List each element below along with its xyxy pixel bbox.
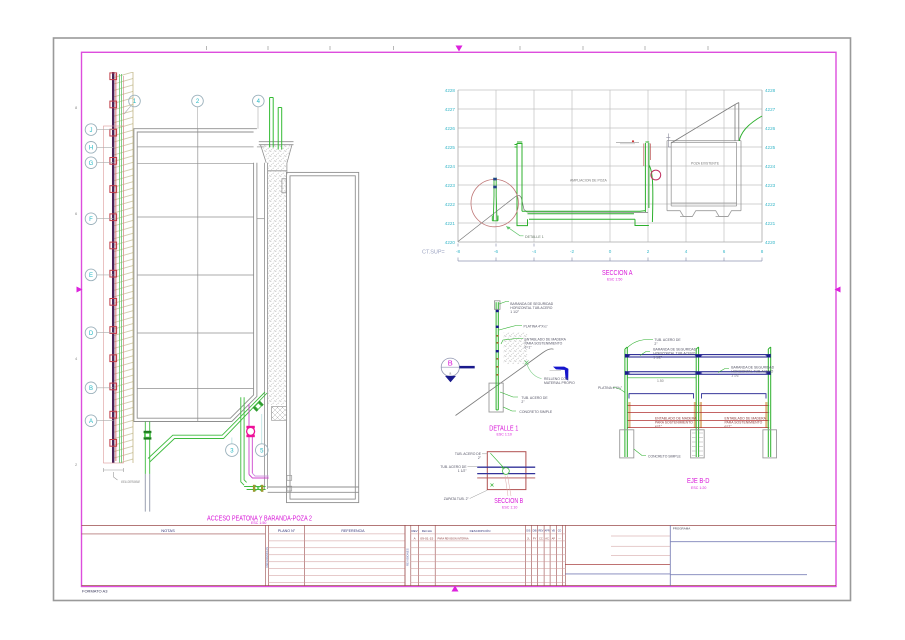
svg-text:J: J xyxy=(90,128,93,134)
svg-text:DESCRIPCIÓN: DESCRIPCIÓN xyxy=(470,528,491,533)
svg-text:CONCRETO SIMPLE: CONCRETO SIMPLE xyxy=(519,410,552,414)
svg-text:DETALLE 1: DETALLE 1 xyxy=(525,235,544,239)
svg-text:AC: AC xyxy=(545,537,549,541)
svg-text:—: — xyxy=(558,538,561,541)
svg-text:1 1/2": 1 1/2" xyxy=(653,355,663,359)
svg-text:CC: CC xyxy=(539,537,543,541)
svg-text:B: B xyxy=(448,359,453,368)
svg-text:4228: 4228 xyxy=(445,88,456,93)
svg-text:2: 2 xyxy=(647,249,650,254)
svg-text:4226: 4226 xyxy=(445,126,456,131)
svg-text:A: A xyxy=(89,419,93,425)
svg-text:4226: 4226 xyxy=(765,126,776,131)
svg-text:DIB: DIB xyxy=(533,530,537,533)
svg-text:H: H xyxy=(89,146,93,152)
svg-text:4225: 4225 xyxy=(445,145,456,150)
svg-text:-8: -8 xyxy=(456,249,461,254)
svg-text:APR: APR xyxy=(545,530,550,533)
svg-text:4224: 4224 xyxy=(765,164,776,169)
svg-text:FECHA: FECHA xyxy=(422,529,432,533)
svg-text:4222: 4222 xyxy=(765,202,776,207)
svg-text:-2: -2 xyxy=(570,249,575,254)
svg-text:4228: 4228 xyxy=(765,88,776,93)
svg-text:ESC 1:10: ESC 1:10 xyxy=(502,506,517,510)
svg-text:DIS: DIS xyxy=(526,530,530,533)
svg-text:4220: 4220 xyxy=(765,240,776,245)
svg-text:4223: 4223 xyxy=(445,183,456,188)
svg-text:CONCRETO SIMPLE: CONCRETO SIMPLE xyxy=(648,455,681,459)
svg-text:-4: -4 xyxy=(532,249,537,254)
svg-text:CT.SUP=: CT.SUP= xyxy=(422,250,445,256)
svg-text:REVISIONES: REVISIONES xyxy=(406,548,410,566)
svg-text:1 1/2": 1 1/2" xyxy=(458,469,468,473)
svg-text:09-01-15: 09-01-15 xyxy=(420,537,433,541)
svg-text:FORMATO A3: FORMATO A3 xyxy=(82,589,108,594)
svg-text:REFERENCIA: REFERENCIA xyxy=(341,529,365,533)
svg-text:PLATINA 4"X¼": PLATINA 4"X¼" xyxy=(598,386,623,390)
svg-text:DETALLE 1: DETALLE 1 xyxy=(489,424,518,433)
svg-text:1 1/2": 1 1/2" xyxy=(510,310,520,314)
svg-text:4227: 4227 xyxy=(765,107,776,112)
svg-text:e=1": e=1" xyxy=(725,425,733,429)
svg-text:EJE B-D: EJE B-D xyxy=(687,476,710,485)
svg-text:-6: -6 xyxy=(494,249,499,254)
svg-text:POZA EXISTENTE: POZA EXISTENTE xyxy=(691,161,720,165)
svg-text:ESC 1:50: ESC 1:50 xyxy=(251,521,266,525)
svg-text:AMPLIACION DE POZA: AMPLIACION DE POZA xyxy=(570,179,607,183)
svg-text:4224: 4224 xyxy=(445,164,456,169)
svg-text:6: 6 xyxy=(723,249,726,254)
svg-text:4220: 4220 xyxy=(445,240,456,245)
svg-text:PARA REVISION INTERNA: PARA REVISION INTERNA xyxy=(438,537,469,541)
svg-text:ESC 1:50: ESC 1:50 xyxy=(607,278,622,282)
svg-text:E: E xyxy=(89,273,93,279)
svg-text:F: F xyxy=(89,217,93,223)
svg-text:NOTAS: NOTAS xyxy=(161,528,175,533)
svg-text:4221: 4221 xyxy=(445,221,456,226)
svg-text:1.50: 1.50 xyxy=(657,379,664,383)
svg-text:A: A xyxy=(414,537,416,541)
svg-text:B: B xyxy=(89,386,93,392)
svg-text:D: D xyxy=(89,331,94,337)
svg-text:PROGRAMA: PROGRAMA xyxy=(673,527,691,531)
svg-text:MATERIAL PROPIO: MATERIAL PROPIO xyxy=(544,381,575,385)
svg-text:4: 4 xyxy=(685,249,688,254)
svg-text:PLATINA 4"X¼": PLATINA 4"X¼" xyxy=(524,325,549,329)
svg-text:e=1": e=1" xyxy=(525,346,533,350)
svg-text:4221: 4221 xyxy=(765,221,776,226)
svg-text:ESC 1:20: ESC 1:20 xyxy=(691,486,706,490)
svg-text:TUB. ACERO DE: TUB. ACERO DE xyxy=(654,338,681,342)
svg-text:e=1": e=1" xyxy=(655,425,663,429)
svg-text:AREA A DERRUMBAR: AREA A DERRUMBAR xyxy=(121,480,140,484)
svg-text:VB: VB xyxy=(552,530,556,533)
svg-text:ESC 1:10: ESC 1:10 xyxy=(497,432,512,436)
svg-text:1 1/2": 1 1/2" xyxy=(731,373,741,377)
svg-text:SECCION B: SECCION B xyxy=(494,496,523,505)
svg-text:4225: 4225 xyxy=(765,145,776,150)
svg-text:4222: 4222 xyxy=(445,202,456,207)
svg-text:4223: 4223 xyxy=(765,183,776,188)
svg-text:8: 8 xyxy=(761,249,764,254)
svg-text:PY: PY xyxy=(533,537,537,541)
svg-text:PLANO N°: PLANO N° xyxy=(278,529,296,533)
svg-text:ZAPATA TUB. 2": ZAPATA TUB. 2" xyxy=(444,497,470,501)
svg-text:REFERENCIAS: REFERENCIAS xyxy=(265,547,269,568)
svg-text:REV: REV xyxy=(538,530,543,533)
svg-text:0: 0 xyxy=(609,249,612,254)
svg-text:4227: 4227 xyxy=(445,107,456,112)
svg-text:G: G xyxy=(89,161,94,167)
svg-text:SECCION A: SECCION A xyxy=(602,268,633,277)
svg-text:TUB. ACERO DE: TUB. ACERO DE xyxy=(521,396,548,400)
svg-text:REV: REV xyxy=(412,529,418,533)
svg-text:CO: CO xyxy=(558,530,562,533)
svg-text:AP: AP xyxy=(552,537,556,541)
